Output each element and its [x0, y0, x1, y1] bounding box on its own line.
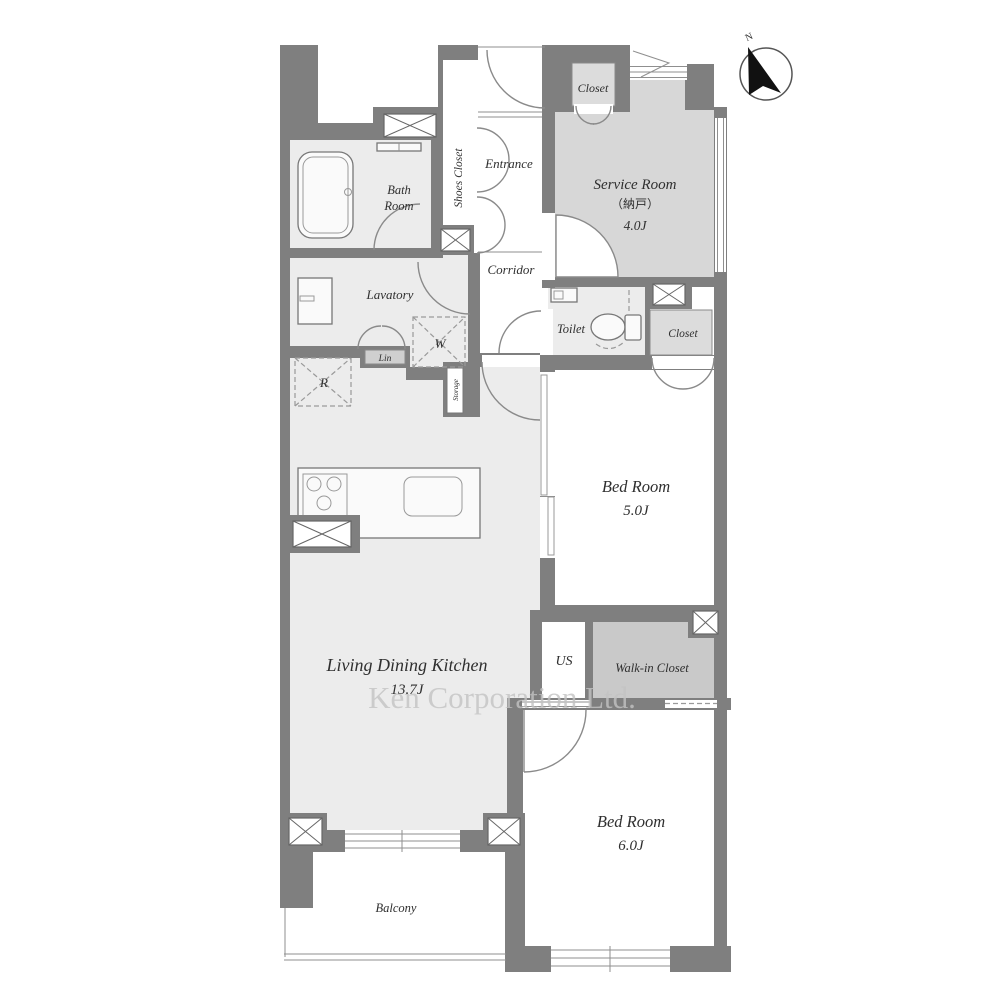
storage-label: Storage [452, 379, 460, 401]
bedroom5-label: Bed Room [602, 477, 670, 496]
balcony-label: Balcony [376, 901, 417, 915]
floor-plan: Bath Room Shoes Closet Entrance Closet S… [0, 0, 1000, 1000]
ldk-area [290, 360, 540, 852]
ldk-label: Living Dining Kitchen [326, 655, 488, 675]
service-room-door-opening [542, 213, 555, 280]
washing-machine-label: W [435, 336, 447, 351]
bedroom6-size: 6.0J [618, 838, 645, 854]
service-room-side-window [715, 118, 726, 272]
balcony-railing [284, 908, 506, 960]
north-arrow-icon [748, 47, 781, 95]
entrance-label: Entrance [484, 156, 533, 171]
toilet-label: Toilet [557, 322, 586, 336]
service-room-size: 4.0J [624, 218, 648, 233]
ldk-door-opening [482, 355, 540, 367]
toilet-hand-basin [551, 288, 577, 302]
bath-room-label: Room [383, 199, 413, 213]
bedroom5-size: 5.0J [623, 503, 650, 519]
bathtub [298, 152, 353, 238]
pillar [293, 521, 351, 547]
pillar [653, 284, 685, 305]
toilet-door-opening [540, 309, 553, 355]
lavatory-label: Lavatory [366, 287, 414, 302]
pipe-shaft [692, 287, 714, 307]
bed5-closet-opening [652, 356, 714, 369]
watermark: Ken Corporation Ltd. [368, 680, 636, 715]
bath-room-label: Bath [387, 183, 411, 197]
toilet-bowl [591, 314, 625, 340]
linen-label: Lin [378, 354, 392, 364]
upper-closet-opening [574, 104, 613, 114]
service-room-label: Service Room [594, 177, 677, 193]
bed5-closet-label: Closet [668, 328, 698, 340]
upper-closet-label: Closet [578, 81, 609, 95]
pillar [289, 818, 322, 845]
compass: N [740, 31, 792, 100]
pillar [693, 611, 718, 634]
service-room-jp-label: （納戸） [611, 197, 659, 211]
pillar [441, 229, 470, 251]
compass-north-label: N [744, 31, 755, 44]
pillar [384, 114, 436, 137]
refrigerator-label: R [319, 375, 328, 390]
shoes-closet-label: Shoes Closet [453, 148, 465, 208]
pillar [488, 818, 520, 845]
walk-in-closet-label: Walk-in Closet [615, 661, 689, 675]
us-label: US [555, 654, 572, 669]
bedroom6-label: Bed Room [597, 812, 665, 831]
corridor-label: Corridor [488, 262, 536, 277]
entrance-corridor-area [477, 60, 542, 360]
floor-plan-canvas: Bath Room Shoes Closet Entrance Closet S… [0, 0, 1000, 1000]
toilet-tank [625, 315, 641, 340]
